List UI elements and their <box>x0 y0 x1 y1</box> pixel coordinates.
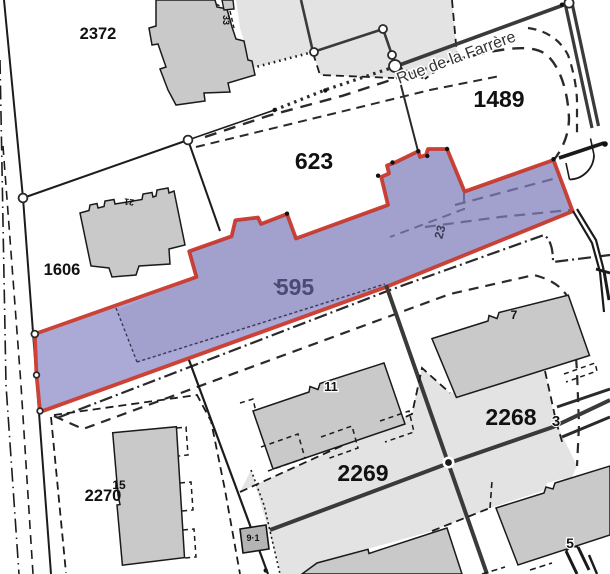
svg-text:623: 623 <box>295 148 333 174</box>
svg-text:2269: 2269 <box>337 460 388 486</box>
svg-text:7: 7 <box>511 308 518 322</box>
svg-text:2372: 2372 <box>80 25 117 43</box>
svg-text:11: 11 <box>324 379 338 394</box>
svg-text:9·1: 9·1 <box>246 533 259 543</box>
svg-text:33: 33 <box>221 15 231 25</box>
svg-text:1606: 1606 <box>44 261 81 279</box>
svg-text:1489: 1489 <box>473 86 524 112</box>
svg-text:5: 5 <box>566 535 574 551</box>
svg-text:15: 15 <box>112 478 126 492</box>
svg-text:3: 3 <box>552 413 560 430</box>
svg-text:595: 595 <box>276 274 315 300</box>
svg-text:2268: 2268 <box>485 404 536 430</box>
svg-text:21: 21 <box>124 196 135 207</box>
